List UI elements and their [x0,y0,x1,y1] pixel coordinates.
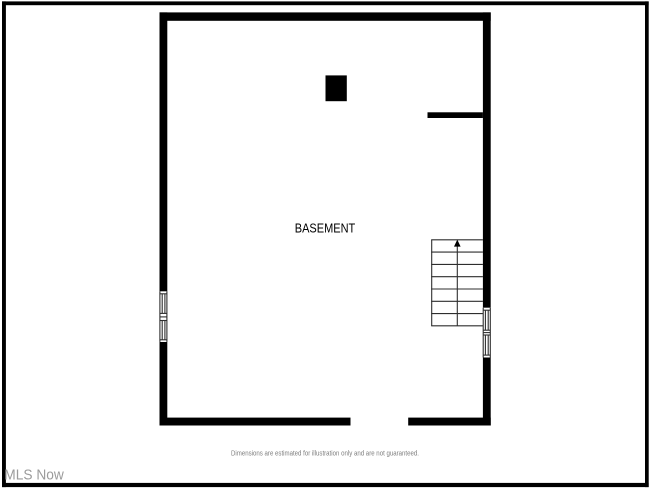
svg-text:BASEMENT: BASEMENT [295,222,356,236]
svg-text:Dimensions are estimated for i: Dimensions are estimated for illustratio… [231,448,419,457]
svg-text:MLS Now: MLS Now [4,467,64,483]
